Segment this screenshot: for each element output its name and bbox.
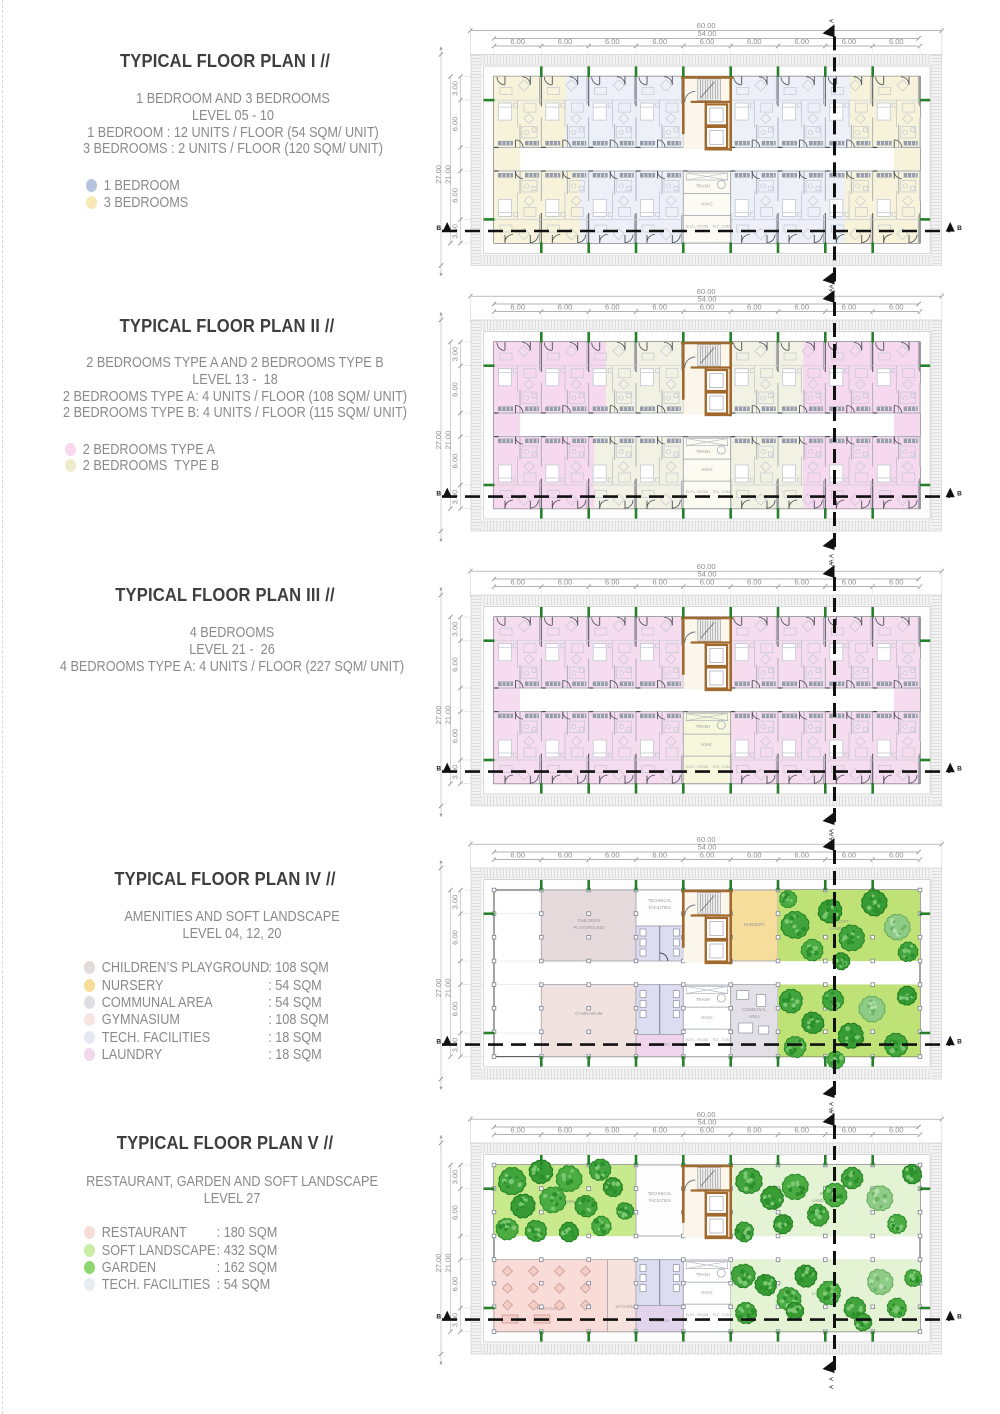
svg-text:27.00: 27.00 [434, 165, 443, 184]
svg-text:6.00: 6.00 [700, 577, 715, 586]
svg-text:6.00: 6.00 [652, 37, 667, 46]
svg-text:21.00: 21.00 [444, 165, 453, 184]
svg-text:KITCHEN: KITCHEN [616, 1304, 634, 1309]
svg-text:B: B [436, 225, 441, 232]
svg-text:A: A [830, 1102, 836, 1106]
svg-text:6.00: 6.00 [700, 850, 715, 859]
svg-text:HVAC: HVAC [701, 1290, 712, 1295]
svg-text:6.00: 6.00 [510, 37, 525, 46]
svg-text:6.00: 6.00 [451, 117, 460, 132]
svg-text:6.00: 6.00 [558, 37, 573, 46]
svg-text:6.00: 6.00 [605, 577, 620, 586]
svg-text:21.00: 21.00 [444, 979, 453, 998]
svg-text:B: B [436, 1038, 441, 1045]
svg-text:ELEC. ROOM: ELEC. ROOM [686, 1313, 709, 1317]
svg-text:HVAC: HVAC [701, 202, 712, 207]
svg-text:FACILITIES: FACILITIES [649, 905, 671, 910]
svg-text:6.00: 6.00 [700, 302, 715, 311]
svg-text:6.00: 6.00 [889, 37, 904, 46]
svg-text:6.00: 6.00 [558, 850, 573, 859]
svg-text:6.00: 6.00 [747, 1125, 762, 1134]
svg-text:6.00: 6.00 [558, 577, 573, 586]
svg-text:TEC. COM: TEC. COM [712, 1038, 730, 1042]
svg-text:B: B [436, 490, 441, 497]
svg-text:6.00: 6.00 [794, 302, 809, 311]
svg-text:ELEC. ROOM: ELEC. ROOM [686, 225, 709, 229]
svg-text:HVAC: HVAC [701, 467, 712, 472]
svg-text:3.00: 3.00 [451, 81, 460, 96]
svg-text:6.00: 6.00 [451, 188, 460, 203]
svg-text:6.00: 6.00 [451, 1277, 460, 1292]
svg-text:B: B [957, 225, 962, 232]
svg-text:TRASH: TRASH [696, 997, 710, 1002]
svg-text:6.00: 6.00 [451, 1205, 460, 1220]
svg-text:6.00: 6.00 [605, 1125, 620, 1134]
svg-text:TEC. COM: TEC. COM [712, 1313, 730, 1317]
svg-text:ELEC. ROOM: ELEC. ROOM [686, 1038, 709, 1042]
svg-text:6.00: 6.00 [510, 1125, 525, 1134]
svg-text:B: B [957, 765, 962, 772]
svg-text:TRASH: TRASH [696, 724, 710, 729]
svg-text:A: A [830, 829, 836, 833]
svg-text:6.00: 6.00 [889, 1125, 904, 1134]
svg-text:TRASH: TRASH [696, 449, 710, 454]
svg-text:6.00: 6.00 [889, 302, 904, 311]
svg-text:A: A [830, 1385, 836, 1389]
svg-text:A: A [830, 832, 836, 836]
svg-text:6.00: 6.00 [451, 382, 460, 397]
svg-text:6.00: 6.00 [794, 577, 809, 586]
svg-text:TRASH: TRASH [696, 184, 710, 189]
svg-text:6.00: 6.00 [842, 37, 857, 46]
svg-text:A: A [830, 284, 836, 288]
svg-text:6.00: 6.00 [842, 577, 857, 586]
svg-text:6.00: 6.00 [605, 302, 620, 311]
svg-text:ELEC. ROOM: ELEC. ROOM [686, 490, 709, 494]
svg-text:27.00: 27.00 [434, 979, 443, 998]
svg-text:27.00: 27.00 [434, 431, 443, 450]
svg-text:6.00: 6.00 [889, 577, 904, 586]
svg-text:6.00: 6.00 [451, 729, 460, 744]
svg-text:HVAC: HVAC [701, 1015, 712, 1020]
svg-text:6.00: 6.00 [451, 657, 460, 672]
svg-text:6.00: 6.00 [652, 1125, 667, 1134]
svg-text:6.00: 6.00 [652, 850, 667, 859]
svg-text:A: A [830, 554, 836, 558]
svg-text:6.00: 6.00 [842, 1125, 857, 1134]
svg-text:B: B [436, 1313, 441, 1320]
svg-text:TRASH: TRASH [696, 1272, 710, 1277]
svg-text:A: A [830, 1377, 836, 1381]
svg-text:AREA: AREA [749, 1014, 761, 1019]
svg-text:B: B [957, 1313, 962, 1320]
svg-text:6.00: 6.00 [652, 577, 667, 586]
svg-text:6.00: 6.00 [700, 1125, 715, 1134]
svg-text:A: A [830, 1107, 836, 1111]
svg-text:6.00: 6.00 [451, 454, 460, 469]
svg-text:21.00: 21.00 [444, 1254, 453, 1273]
svg-text:21.00: 21.00 [444, 706, 453, 725]
svg-text:PLAYGROUND: PLAYGROUND [573, 925, 603, 930]
svg-text:6.00: 6.00 [842, 302, 857, 311]
svg-text:TECHNICAL: TECHNICAL [648, 898, 672, 903]
svg-text:6.00: 6.00 [747, 577, 762, 586]
svg-text:6.00: 6.00 [510, 850, 525, 859]
svg-text:6.00: 6.00 [700, 37, 715, 46]
svg-text:6.00: 6.00 [558, 1125, 573, 1134]
svg-text:3.00: 3.00 [451, 895, 460, 910]
svg-text:TEC. COM: TEC. COM [712, 490, 730, 494]
svg-text:6.00: 6.00 [558, 302, 573, 311]
svg-text:6.00: 6.00 [510, 577, 525, 586]
svg-text:6.00: 6.00 [605, 37, 620, 46]
svg-text:6.00: 6.00 [510, 302, 525, 311]
svg-text:6.00: 6.00 [794, 1125, 809, 1134]
svg-text:3.00: 3.00 [451, 347, 460, 362]
svg-text:A: A [830, 19, 836, 23]
svg-text:TEC. COM: TEC. COM [712, 225, 730, 229]
svg-text:TECHNICAL: TECHNICAL [648, 1191, 672, 1196]
svg-text:B: B [957, 1038, 962, 1045]
svg-text:A: A [830, 559, 836, 563]
svg-text:TEC. COM: TEC. COM [712, 765, 730, 769]
svg-text:B: B [436, 765, 441, 772]
svg-text:FACILITIES: FACILITIES [649, 1198, 671, 1203]
svg-text:6.00: 6.00 [747, 302, 762, 311]
svg-text:27.00: 27.00 [434, 1254, 443, 1273]
svg-text:6.00: 6.00 [451, 1002, 460, 1017]
svg-text:6.00: 6.00 [747, 850, 762, 859]
svg-text:B: B [957, 490, 962, 497]
svg-text:6.00: 6.00 [842, 850, 857, 859]
svg-text:6.00: 6.00 [889, 850, 904, 859]
svg-text:ELEC. ROOM: ELEC. ROOM [686, 765, 709, 769]
svg-text:CHILDREN: CHILDREN [577, 918, 599, 923]
svg-text:6.00: 6.00 [794, 850, 809, 859]
svg-text:NURSERY: NURSERY [744, 922, 765, 927]
svg-text:GYMNASIUM: GYMNASIUM [575, 1011, 602, 1016]
svg-text:27.00: 27.00 [434, 706, 443, 725]
svg-text:21.00: 21.00 [444, 431, 453, 450]
svg-text:3.00: 3.00 [451, 622, 460, 637]
svg-text:3.00: 3.00 [451, 1170, 460, 1185]
svg-text:COMMUNAL: COMMUNAL [742, 1007, 767, 1012]
svg-text:6.00: 6.00 [652, 302, 667, 311]
svg-text:6.00: 6.00 [451, 930, 460, 945]
svg-text:HVAC: HVAC [701, 742, 712, 747]
svg-text:6.00: 6.00 [605, 850, 620, 859]
svg-text:6.00: 6.00 [794, 37, 809, 46]
svg-text:6.00: 6.00 [747, 37, 762, 46]
